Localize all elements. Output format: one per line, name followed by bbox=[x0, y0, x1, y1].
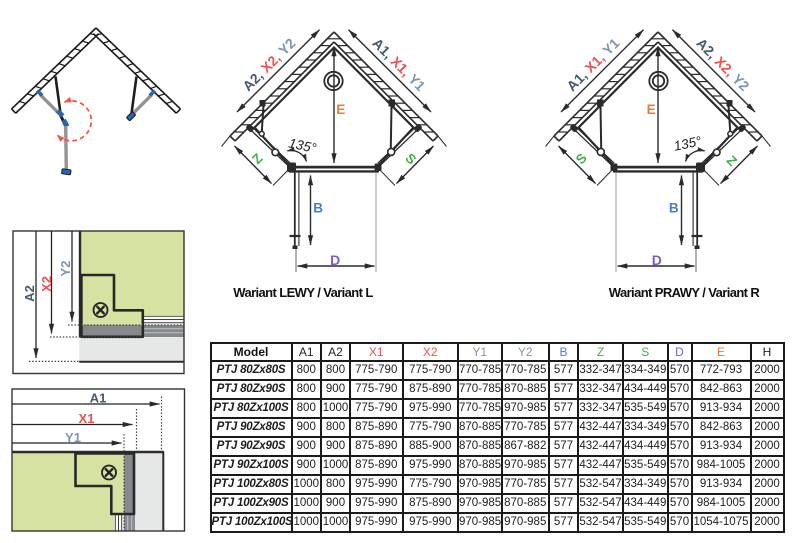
svg-text:S: S bbox=[402, 150, 419, 167]
svg-text:S: S bbox=[573, 150, 590, 167]
svg-text:Y2: Y2 bbox=[58, 261, 73, 277]
svg-text:X2: X2 bbox=[39, 276, 54, 292]
svg-text:135°: 135° bbox=[287, 135, 318, 156]
svg-text:Wariant PRAWY / Variant R: Wariant PRAWY / Variant R bbox=[609, 285, 761, 300]
svg-text:B: B bbox=[313, 201, 323, 216]
svg-text:E: E bbox=[336, 102, 345, 117]
svg-text:Wariant LEWY / Variant L: Wariant LEWY / Variant L bbox=[233, 285, 373, 300]
svg-text:A1: A1 bbox=[90, 391, 107, 406]
svg-text:Z: Z bbox=[249, 151, 265, 167]
svg-text:Y1: Y1 bbox=[65, 430, 81, 445]
svg-text:X1: X1 bbox=[79, 411, 95, 426]
svg-text:D: D bbox=[652, 252, 662, 268]
svg-text:B: B bbox=[669, 201, 679, 216]
svg-text:E: E bbox=[647, 102, 656, 117]
svg-text:D: D bbox=[330, 252, 340, 268]
svg-text:A2: A2 bbox=[22, 285, 37, 302]
